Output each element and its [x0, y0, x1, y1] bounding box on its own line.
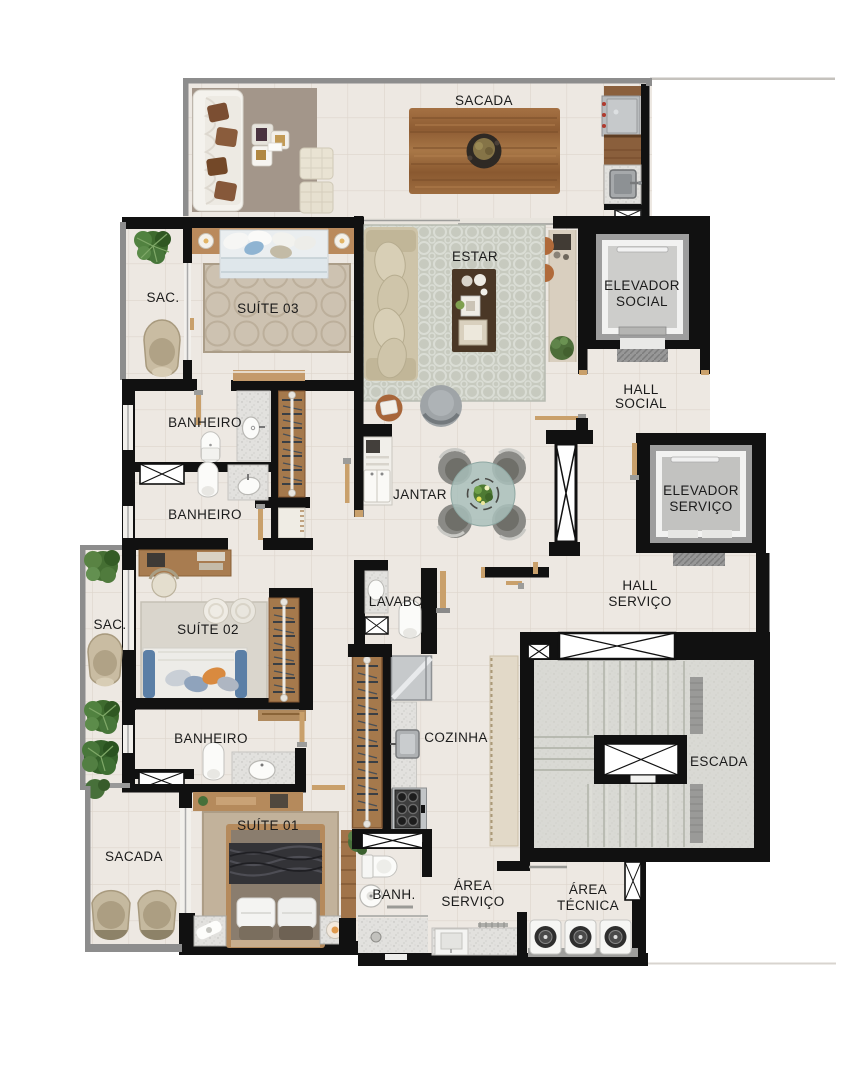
svg-text:BANHEIRO: BANHEIRO — [174, 731, 248, 746]
svg-text:SOCIAL: SOCIAL — [616, 294, 668, 309]
svg-text:TÉCNICA: TÉCNICA — [557, 898, 619, 913]
svg-text:ÁREA: ÁREA — [569, 882, 607, 897]
svg-text:SERVIÇO: SERVIÇO — [441, 894, 504, 909]
svg-text:BANHEIRO: BANHEIRO — [168, 415, 242, 430]
svg-text:ESCADA: ESCADA — [690, 754, 748, 769]
svg-text:SACADA: SACADA — [105, 849, 163, 864]
svg-text:HALL: HALL — [622, 578, 657, 593]
svg-text:SERVIÇO: SERVIÇO — [669, 499, 732, 514]
svg-text:ESTAR: ESTAR — [452, 249, 498, 264]
svg-text:COZINHA: COZINHA — [424, 730, 488, 745]
svg-text:SUÍTE 02: SUÍTE 02 — [177, 622, 239, 637]
svg-text:JANTAR: JANTAR — [393, 487, 447, 502]
svg-text:SAC.: SAC. — [93, 617, 126, 632]
svg-text:HALL: HALL — [623, 382, 658, 397]
svg-text:SUÍTE 01: SUÍTE 01 — [237, 818, 299, 833]
svg-text:SAC.: SAC. — [146, 290, 179, 305]
svg-text:ELEVADOR: ELEVADOR — [663, 483, 739, 498]
svg-text:LAVABO: LAVABO — [369, 594, 423, 609]
svg-text:SACADA: SACADA — [455, 93, 513, 108]
svg-text:ELEVADOR: ELEVADOR — [604, 278, 680, 293]
svg-text:ÁREA: ÁREA — [454, 878, 492, 893]
svg-text:SUÍTE 03: SUÍTE 03 — [237, 301, 299, 316]
svg-text:SOCIAL: SOCIAL — [615, 396, 667, 411]
svg-text:BANHEIRO: BANHEIRO — [168, 507, 242, 522]
svg-text:BANH.: BANH. — [372, 887, 415, 902]
svg-text:SERVIÇO: SERVIÇO — [608, 594, 671, 609]
